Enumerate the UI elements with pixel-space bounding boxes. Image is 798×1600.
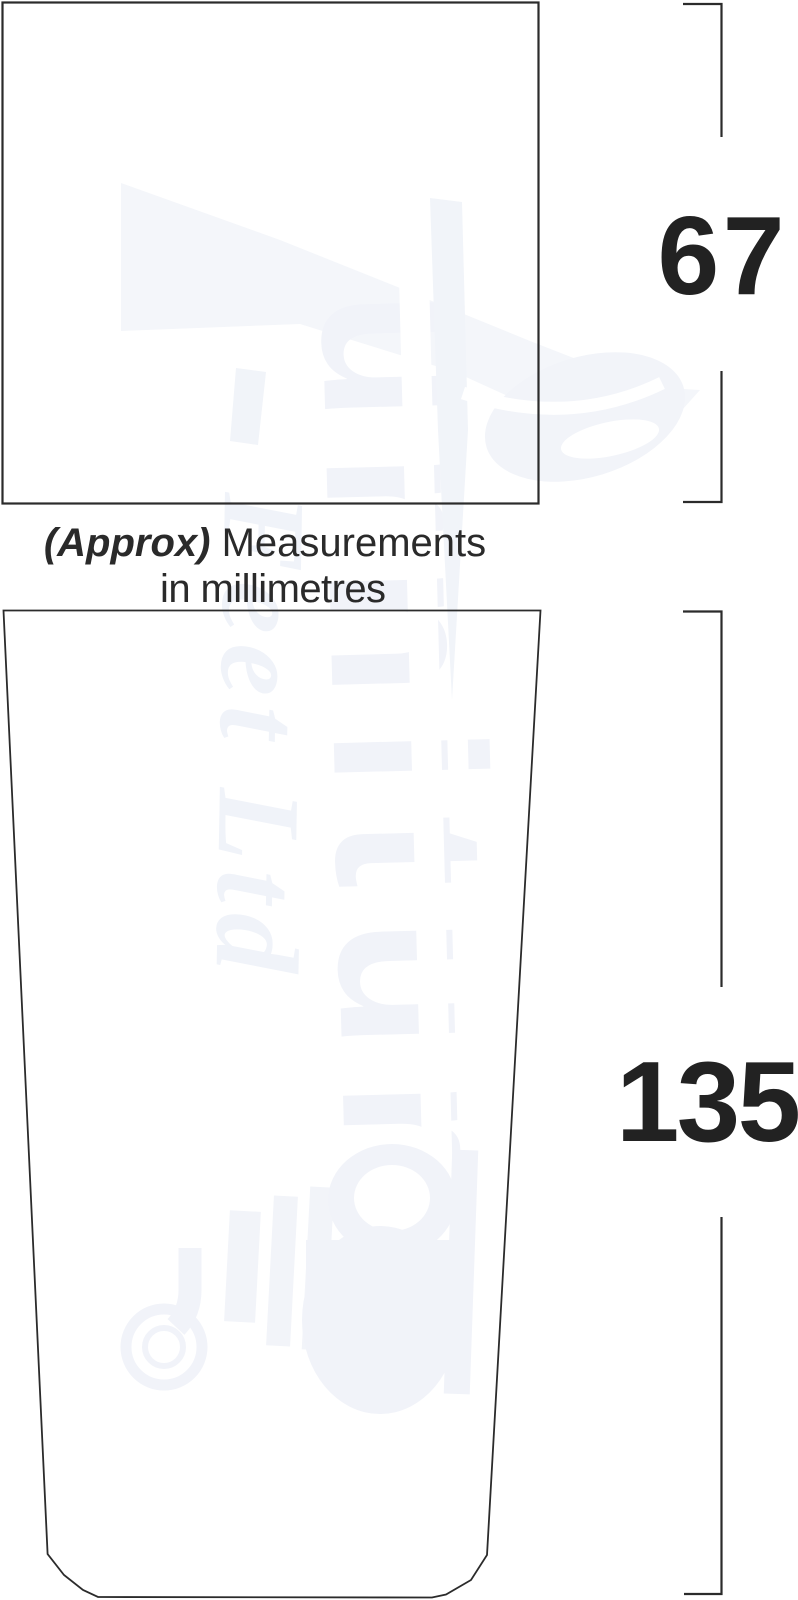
svg-text:(Approx) Measurements: (Approx) Measurements: [44, 521, 486, 565]
svg-text:135: 135: [616, 1039, 798, 1166]
svg-text:in millimetres: in millimetres: [160, 567, 386, 611]
